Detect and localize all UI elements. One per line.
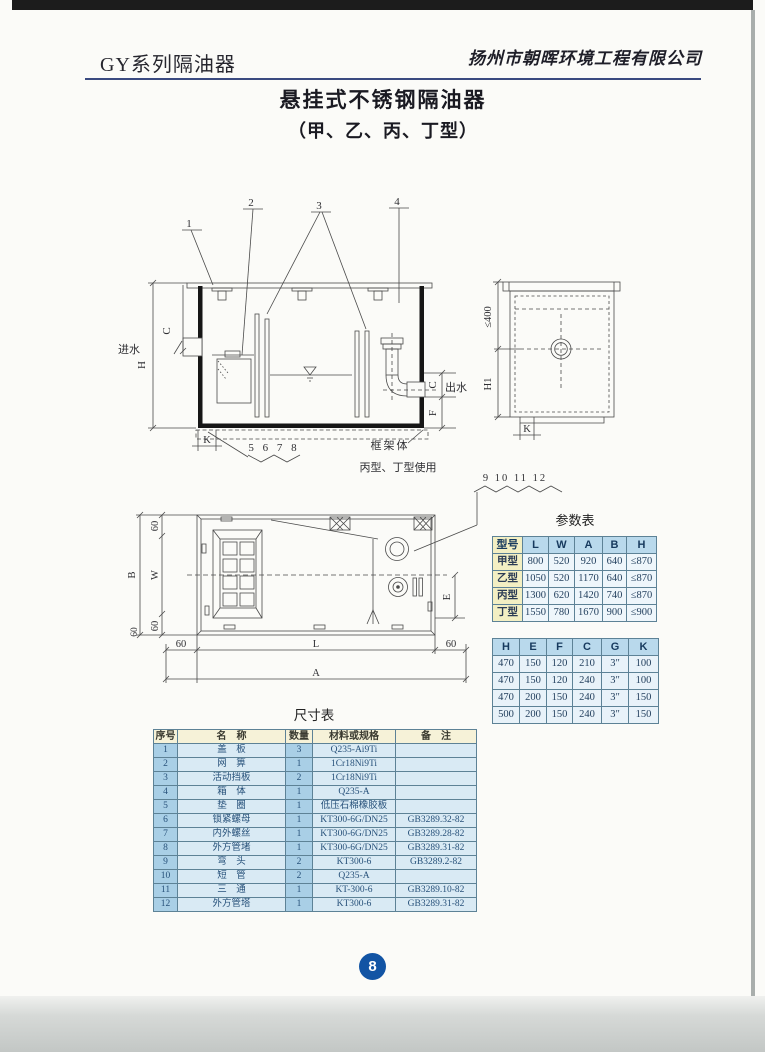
table-cell: 1	[286, 814, 313, 828]
table-cell: 240	[573, 690, 602, 707]
table-cell: 1	[154, 744, 178, 758]
dim-f: F	[427, 410, 439, 416]
table-cell: 3	[286, 744, 313, 758]
dim-60-left: 60	[176, 639, 187, 650]
callouts-9-12: 9 10 11 12	[483, 473, 547, 484]
table-cell: ≤870	[627, 554, 657, 571]
table-cell: KT-300-6	[313, 884, 396, 898]
lid-brackets	[212, 288, 388, 300]
table-cell: 网 箅	[178, 758, 286, 772]
table-cell: 9	[154, 856, 178, 870]
dim-60-bottom: 60	[150, 621, 161, 632]
table-cell: 800	[523, 554, 549, 571]
table-row: 甲型800520920640≤870	[493, 554, 657, 571]
table-cell: 活动挡板	[178, 772, 286, 786]
table-cell: 7	[154, 828, 178, 842]
table-cell: 1Cr18Ni9Ti	[313, 758, 396, 772]
table-cell: 2	[154, 758, 178, 772]
table-cell	[396, 870, 477, 884]
table-cell: 3″	[602, 656, 629, 673]
parameter-table-2-header-row: HEFCGK	[493, 639, 659, 656]
table-row: 9弯 头2KT300-6GB3289.2-82	[154, 856, 477, 870]
end-view-labels: ≤400 H1 K	[483, 306, 531, 435]
table-cell: GB3289.2-82	[396, 856, 477, 870]
table-cell: 100	[629, 673, 659, 690]
table-cell: 2	[286, 772, 313, 786]
dim-w: W	[150, 570, 161, 580]
callout-1: 1	[186, 218, 192, 230]
dim-e: E	[442, 594, 453, 600]
table-row: 5垫 圈1低压石棉橡胶板	[154, 800, 477, 814]
table-cell: 1550	[523, 605, 549, 622]
dim-b: B	[127, 571, 138, 578]
column-header: 型号	[493, 537, 523, 554]
group-label: 5 6 7 8	[248, 442, 299, 454]
table-cell: 120	[547, 656, 573, 673]
table-cell: GB3289.28-82	[396, 828, 477, 842]
inlet-label: 进水	[118, 343, 140, 356]
table-cell: 乙型	[493, 571, 523, 588]
callout-4: 4	[394, 196, 400, 208]
table-cell: KT300-6G/DN25	[313, 842, 396, 856]
table-row: 4701501202103″100	[493, 656, 659, 673]
table-cell: KT300-6	[313, 898, 396, 912]
table-cell	[396, 772, 477, 786]
column-header: B	[603, 537, 627, 554]
end-view-lines	[493, 279, 620, 440]
column-header: W	[549, 537, 575, 554]
table-row: 12外方管塔1KT300-6GB3289.31-82	[154, 898, 477, 912]
page-title: 悬挂式不锈钢隔油器	[100, 84, 666, 114]
callout-2: 2	[248, 197, 254, 209]
table-cell	[396, 744, 477, 758]
table-cell: 2	[286, 870, 313, 884]
dim-60-top: 60	[150, 521, 161, 532]
table-cell: 1050	[523, 571, 549, 588]
dim-l: L	[313, 639, 319, 650]
table-cell: 盖 板	[178, 744, 286, 758]
table-cell: 低压石棉橡胶板	[313, 800, 396, 814]
table-row: 10短 管2Q235-A	[154, 870, 477, 884]
table-cell: 210	[573, 656, 602, 673]
table-cell: 1	[286, 842, 313, 856]
header-rule	[85, 78, 701, 80]
plan-view-drawing: 9 10 11 12 60 W B 60 60 60 L 60 A E	[125, 458, 545, 708]
plan-view-labels: 9 10 11 12 60 W B 60 60 60 L 60 A E	[127, 473, 547, 679]
table-cell: 240	[573, 707, 602, 724]
page-number: 8	[368, 958, 376, 975]
table-cell: 780	[549, 605, 575, 622]
dim-60-corner: 60	[130, 627, 140, 637]
param-table-title: 参数表	[492, 510, 658, 529]
table-cell: 200	[520, 690, 547, 707]
table-cell: 丁型	[493, 605, 523, 622]
table-row: 4701501202403″100	[493, 673, 659, 690]
parameter-table-header-row: 型号LWABH	[493, 537, 657, 554]
table-cell: ≤870	[627, 571, 657, 588]
table-cell	[396, 786, 477, 800]
callout-3: 3	[316, 200, 322, 212]
table-cell: 900	[603, 605, 627, 622]
scan-edge-right	[751, 10, 755, 996]
column-header: 数量	[286, 730, 313, 744]
table-cell: 5	[154, 800, 178, 814]
table-cell: 920	[575, 554, 603, 571]
parameter-table-2: HEFCGK 4701501202103″1004701501202403″10…	[492, 638, 659, 724]
table-cell: 垫 圈	[178, 800, 286, 814]
dim-60-right: 60	[446, 639, 457, 650]
column-header: F	[547, 639, 573, 656]
table-cell: 3″	[602, 690, 629, 707]
table-row: 乙型10505201170640≤870	[493, 571, 657, 588]
table-cell: Q235-A	[313, 870, 396, 884]
column-header: C	[573, 639, 602, 656]
table-cell: 1420	[575, 588, 603, 605]
table-cell: GB3289.31-82	[396, 842, 477, 856]
table-cell: ≤900	[627, 605, 657, 622]
column-header: L	[523, 537, 549, 554]
table-cell: 740	[603, 588, 627, 605]
dim-k: K	[203, 435, 211, 446]
table-cell: 470	[493, 690, 520, 707]
table-cell: 150	[520, 656, 547, 673]
table-row: 丙型13006201420740≤870	[493, 588, 657, 605]
table-row: 6锁紧螺母1KT300-6G/DN25GB3289.32-82	[154, 814, 477, 828]
table-cell: 640	[603, 554, 627, 571]
column-header: 备 注	[396, 730, 477, 744]
parameter-table: 型号LWABH 甲型800520920640≤870乙型105052011706…	[492, 536, 657, 622]
size-table-header-row: 序号名 称数量材料或规格备 注	[154, 730, 477, 744]
table-cell: 470	[493, 656, 520, 673]
table-cell: 200	[520, 707, 547, 724]
table-row: 3活动挡板21Cr18Ni9Ti	[154, 772, 477, 786]
table-cell: 箱 体	[178, 786, 286, 800]
table-cell: KT300-6G/DN25	[313, 814, 396, 828]
column-header: 材料或规格	[313, 730, 396, 744]
table-cell: KT300-6G/DN25	[313, 828, 396, 842]
table-row: 5002001502403″150	[493, 707, 659, 724]
table-cell: 520	[549, 571, 575, 588]
table-cell: GB3289.10-82	[396, 884, 477, 898]
table-cell: 1300	[523, 588, 549, 605]
column-header: 名 称	[178, 730, 286, 744]
table-row: 8外方管堵1KT300-6G/DN25GB3289.31-82	[154, 842, 477, 856]
table-row: 丁型15507801670900≤900	[493, 605, 657, 622]
table-row: 4箱 体1Q235-A	[154, 786, 477, 800]
table-cell: 3	[154, 772, 178, 786]
column-header: G	[602, 639, 629, 656]
table-cell: 3″	[602, 673, 629, 690]
column-header: H	[627, 537, 657, 554]
table-cell: 470	[493, 673, 520, 690]
column-header: K	[629, 639, 659, 656]
table-cell: 10	[154, 870, 178, 884]
table-cell: 甲型	[493, 554, 523, 571]
column-header: A	[575, 537, 603, 554]
page-number-badge: 8	[359, 953, 386, 980]
table-cell: 1170	[575, 571, 603, 588]
table-cell: 外方管塔	[178, 898, 286, 912]
table-row: 11三 通1KT-300-6GB3289.10-82	[154, 884, 477, 898]
table-cell	[396, 800, 477, 814]
table-cell: 520	[549, 554, 575, 571]
table-cell: 1	[286, 786, 313, 800]
table-cell: 2	[286, 856, 313, 870]
table-cell: 3″	[602, 707, 629, 724]
table-cell: 640	[603, 571, 627, 588]
table-row: 1盖 板3Q235-Ai9Ti	[154, 744, 477, 758]
table-cell: 1670	[575, 605, 603, 622]
table-cell: 三 通	[178, 884, 286, 898]
page-subtitle: （甲、乙、丙、丁型）	[100, 117, 666, 143]
table-cell: KT300-6	[313, 856, 396, 870]
end-view-drawing: ≤400 H1 K	[470, 262, 690, 472]
table-cell: 11	[154, 884, 178, 898]
table-cell: 4	[154, 786, 178, 800]
header-company-name: 扬州市朝晖环境工程有限公司	[350, 44, 702, 69]
table-cell: 内外螺丝	[178, 828, 286, 842]
side-view-drawing: 1 2 3 4 进水 C H C F 出水 K 5 6 7 8 框架体 丙型、丁…	[90, 183, 490, 495]
table-cell: 150	[629, 707, 659, 724]
table-cell: 1Cr18Ni9Ti	[313, 772, 396, 786]
table-cell: 弯 头	[178, 856, 286, 870]
table-cell: GB3289.31-82	[396, 898, 477, 912]
table-cell: 6	[154, 814, 178, 828]
table-cell: 500	[493, 707, 520, 724]
column-header: 序号	[154, 730, 178, 744]
dim-k: K	[523, 424, 531, 435]
table-cell: 8	[154, 842, 178, 856]
table-cell: 丙型	[493, 588, 523, 605]
dim-h: H	[136, 361, 148, 369]
table-cell: 1	[286, 800, 313, 814]
table-cell: ≤870	[627, 588, 657, 605]
table-cell: 150	[547, 690, 573, 707]
table-cell: 1	[286, 898, 313, 912]
column-header: H	[493, 639, 520, 656]
size-table: 序号名 称数量材料或规格备 注 1盖 板3Q235-Ai9Ti2网 箅11Cr1…	[153, 729, 477, 912]
table-cell: Q235-Ai9Ti	[313, 744, 396, 758]
table-cell: 240	[573, 673, 602, 690]
table-cell: 120	[547, 673, 573, 690]
column-header: E	[520, 639, 547, 656]
header-series-title: GY系列隔油器	[100, 48, 236, 77]
table-row: 7内外螺丝1KT300-6G/DN25GB3289.28-82	[154, 828, 477, 842]
table-cell: 620	[549, 588, 575, 605]
table-cell: 150	[629, 690, 659, 707]
dim-c-out: C	[427, 381, 439, 388]
table-cell: 锁紧螺母	[178, 814, 286, 828]
size-table-title: 尺寸表	[153, 704, 475, 724]
side-view-lines	[148, 208, 456, 462]
table-cell: 12	[154, 898, 178, 912]
table-cell: 外方管堵	[178, 842, 286, 856]
table-cell: 1	[286, 884, 313, 898]
table-cell: 1	[286, 758, 313, 772]
table-cell	[396, 758, 477, 772]
table-cell: 1	[286, 828, 313, 842]
table-cell: 100	[629, 656, 659, 673]
table-cell: 短 管	[178, 870, 286, 884]
dim-h1: H1	[483, 378, 494, 391]
scan-edge-top	[12, 0, 753, 10]
dim-a: A	[312, 668, 320, 679]
scan-edge-bottom	[0, 996, 765, 1052]
dim-max-400: ≤400	[483, 306, 494, 328]
table-cell: GB3289.32-82	[396, 814, 477, 828]
table-cell: 150	[547, 707, 573, 724]
frame-label: 框架体	[371, 438, 410, 452]
dim-c-in: C	[161, 327, 173, 334]
table-cell: 150	[520, 673, 547, 690]
table-row: 4702001502403″150	[493, 690, 659, 707]
side-view-labels: 1 2 3 4 进水 C H C F 出水 K 5 6 7 8 框架体 丙型、丁…	[118, 196, 467, 474]
table-cell: Q235-A	[313, 786, 396, 800]
outlet-label: 出水	[445, 380, 467, 394]
table-row: 2网 箅11Cr18Ni9Ti	[154, 758, 477, 772]
